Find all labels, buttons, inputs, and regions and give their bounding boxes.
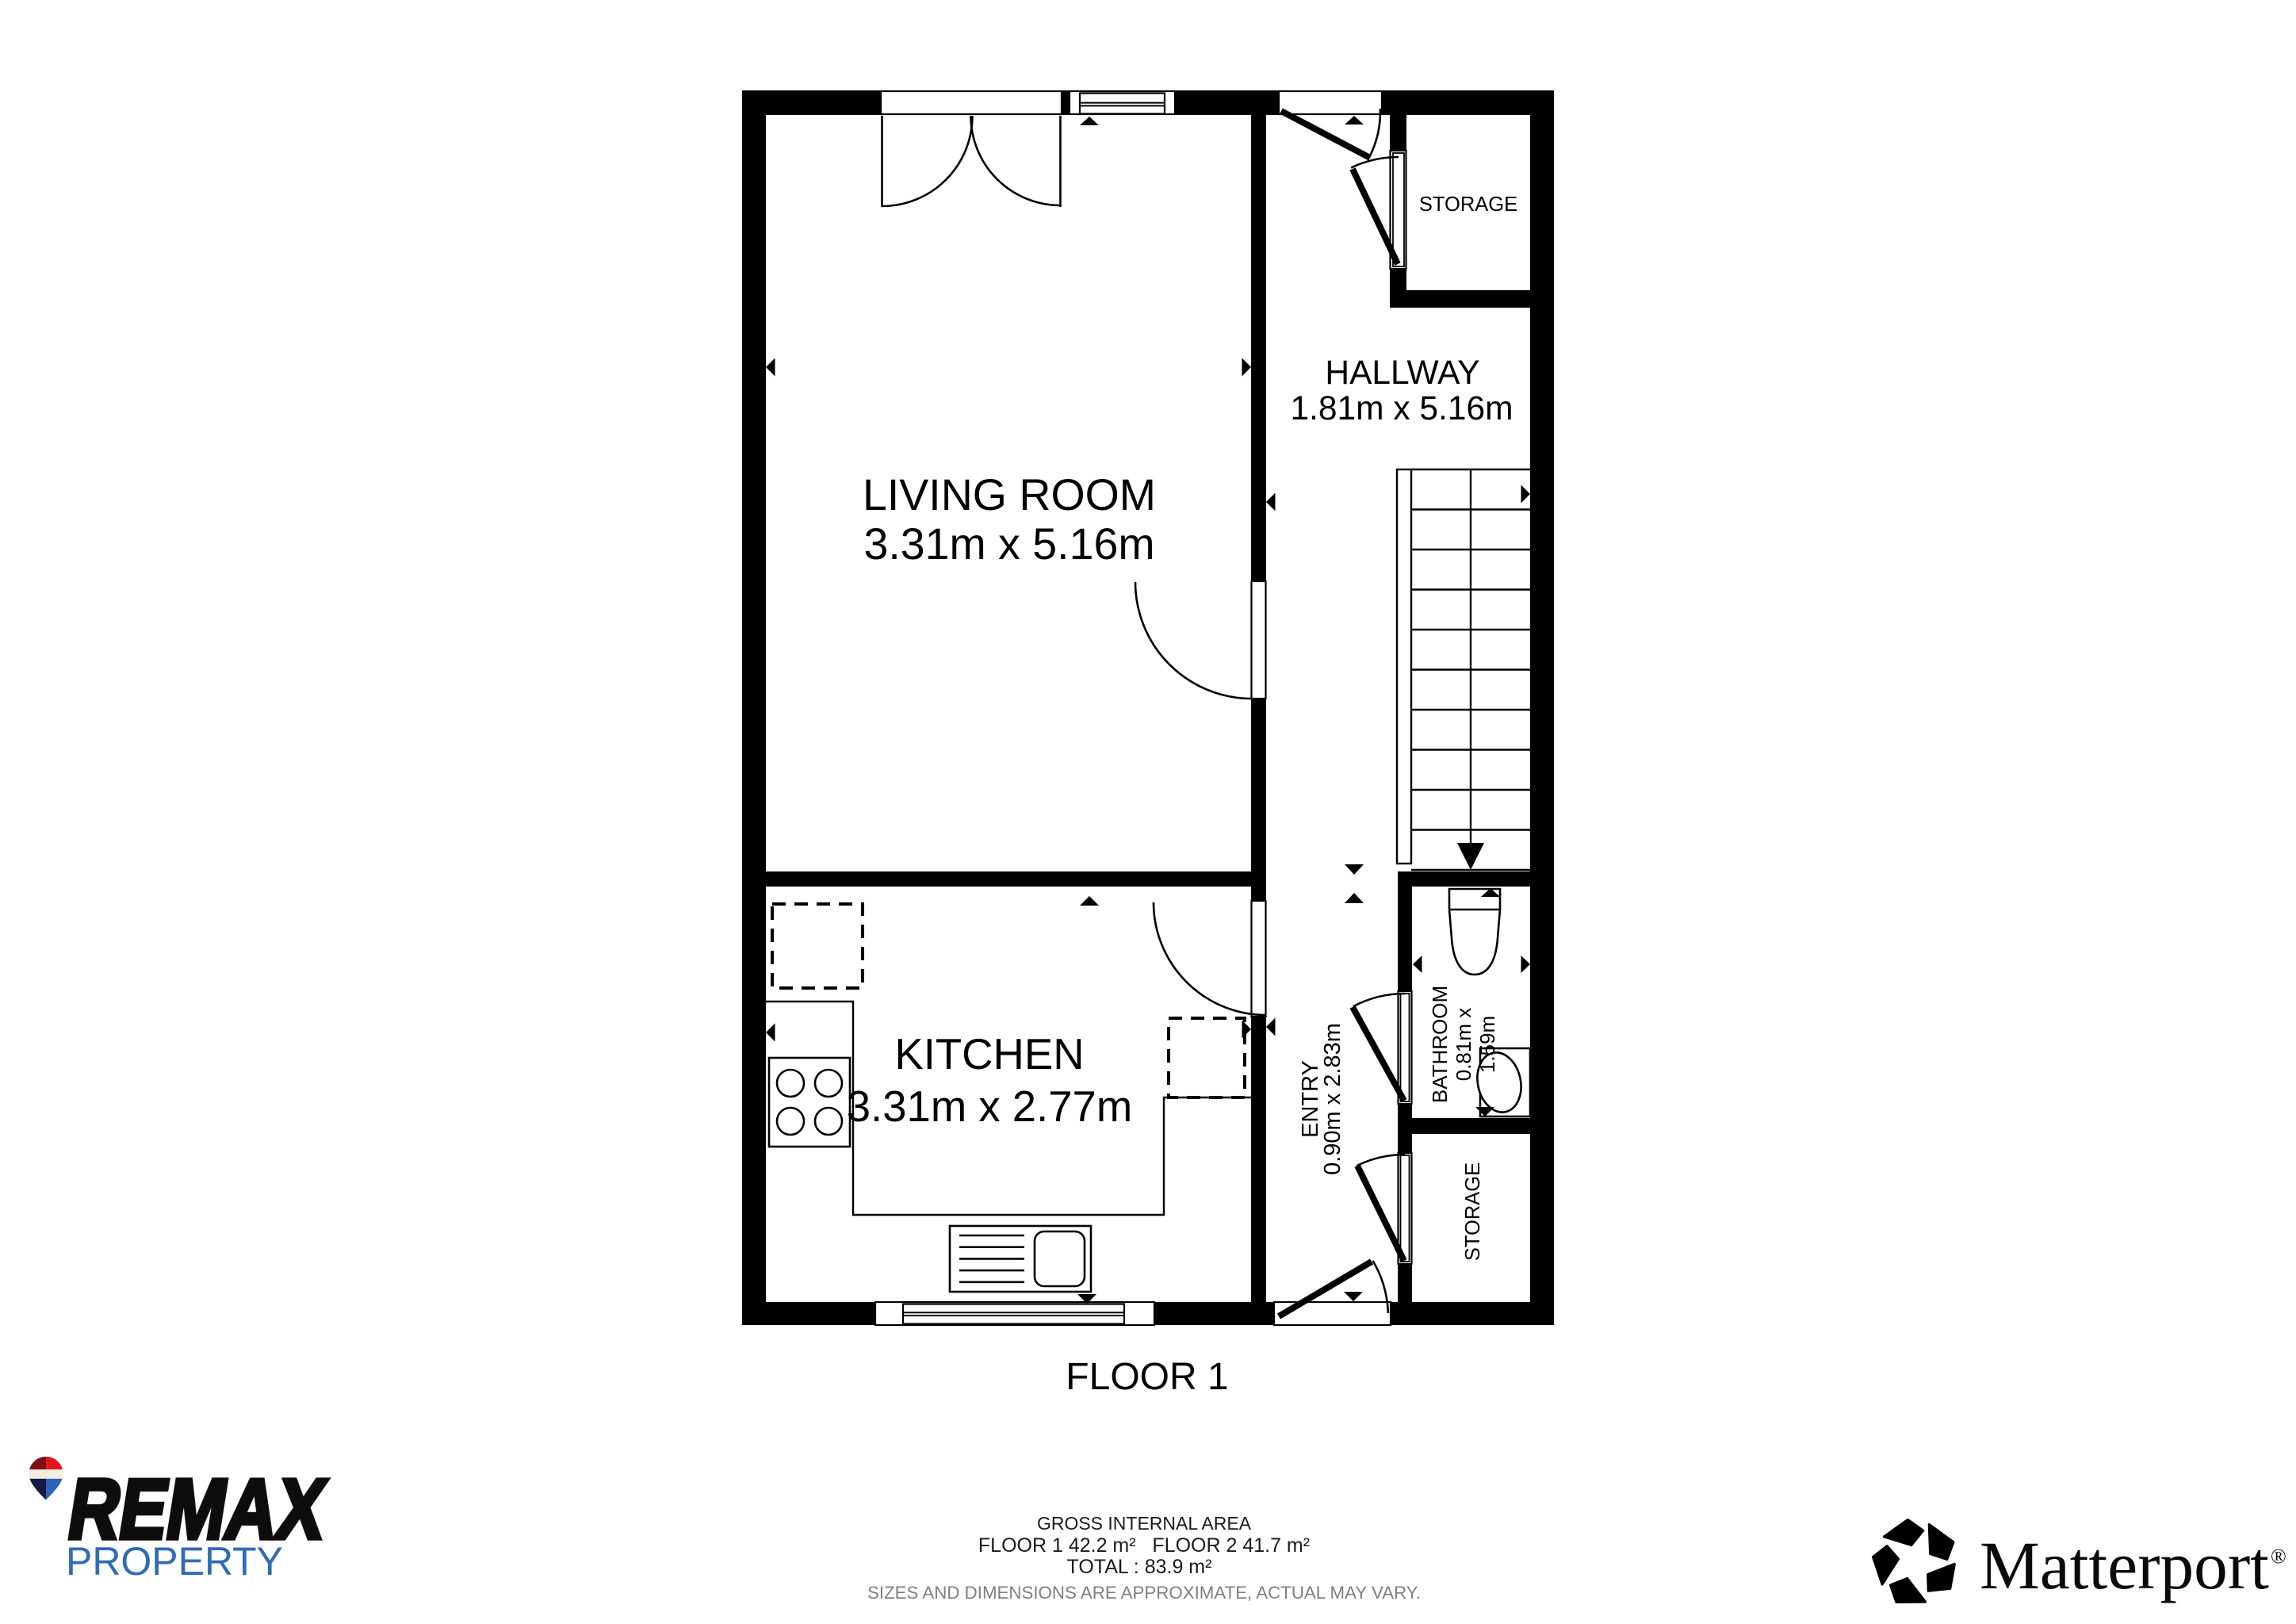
svg-text:GROSS INTERNAL AREA: GROSS INTERNAL AREA [1037,1513,1252,1534]
svg-text:STORAGE: STORAGE [1419,193,1517,216]
svg-text:1.59m: 1.59m [1475,1016,1499,1073]
svg-text:PROPERTY: PROPERTY [66,1539,283,1584]
svg-text:3.31m x 5.16m: 3.31m x 5.16m [863,519,1154,569]
svg-text:LIVING ROOM: LIVING ROOM [863,470,1156,519]
svg-text:Matterport: Matterport [1980,1527,2269,1603]
svg-text:KITCHEN: KITCHEN [894,1030,1084,1078]
svg-text:®: ® [2271,1545,2286,1568]
svg-text:STORAGE: STORAGE [1462,1162,1484,1261]
svg-text:BATHROOM: BATHROOM [1428,986,1452,1103]
svg-text:1.81m x 5.16m: 1.81m x 5.16m [1290,390,1513,427]
svg-text:FLOOR 1: FLOOR 1 [1066,1356,1228,1398]
svg-text:HALLWAY: HALLWAY [1325,354,1479,392]
svg-text:TOTAL : 83.9 m²: TOTAL : 83.9 m² [1067,1556,1212,1578]
svg-text:0.90m x 2.83m: 0.90m x 2.83m [1320,1023,1345,1175]
svg-text:FLOOR 1 42.2 m² FLOOR 2 41.7: FLOOR 1 42.2 m² FLOOR 2 41.7 m² [978,1534,1310,1557]
svg-text:0.81m x: 0.81m x [1452,1008,1475,1082]
svg-text:3.31m x 2.77m: 3.31m x 2.77m [847,1082,1132,1131]
svg-text:SIZES AND DIMENSIONS ARE APPRO: SIZES AND DIMENSIONS ARE APPROXIMATE, AC… [867,1583,1421,1603]
